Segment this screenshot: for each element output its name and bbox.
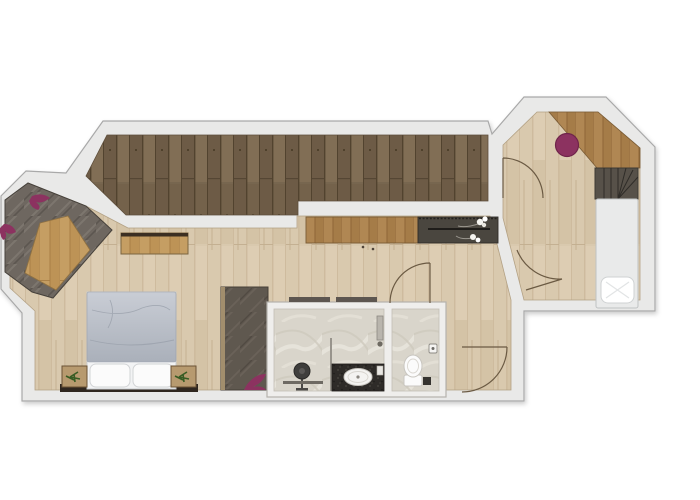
floor-plan-canvas (0, 0, 700, 500)
bathroom-block (267, 297, 446, 397)
sideboard-bench (121, 233, 188, 254)
tub-drain (356, 375, 359, 378)
counter-handle-line (428, 228, 490, 230)
shower-column[interactable] (377, 316, 383, 340)
towel-rail[interactable] (283, 381, 323, 384)
counter-wood-section (306, 217, 418, 243)
pillow-left (90, 364, 130, 387)
single-bed[interactable] (596, 199, 638, 308)
round-lounge-chair[interactable] (556, 134, 579, 157)
floor-speck-1 (362, 246, 365, 249)
shower-shelf (377, 366, 383, 375)
floor-speck-2 (372, 248, 375, 251)
wardrobe-tall (221, 287, 268, 390)
shower-head (377, 341, 382, 346)
winder-staircase[interactable] (595, 168, 638, 199)
double-bed-duvet (87, 292, 176, 362)
wc-door-handle[interactable] (429, 344, 437, 353)
wall-strip-left (289, 297, 330, 302)
floor-plan-svg (0, 0, 700, 500)
toilet-bin (423, 377, 431, 385)
pillow-right (133, 364, 173, 387)
toilet[interactable] (404, 355, 422, 386)
wall-strip-right (336, 297, 377, 302)
